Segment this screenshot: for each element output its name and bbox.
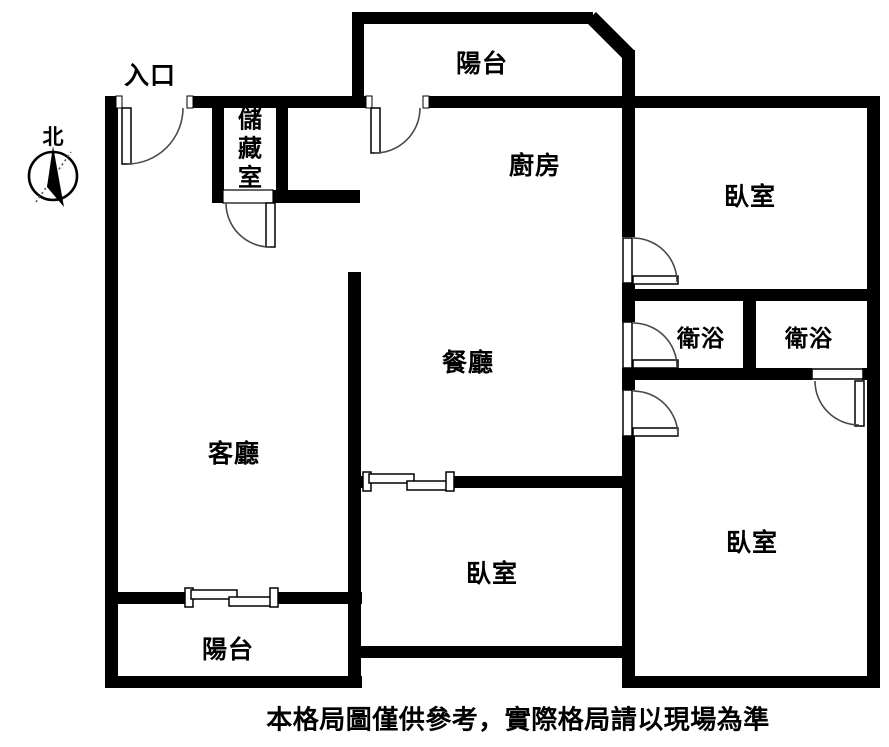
room-label-bath-left: 衛浴	[677, 319, 725, 353]
wall-segment	[348, 646, 635, 658]
wall-segment	[276, 592, 362, 604]
wall-segment	[867, 96, 880, 688]
wall-segment	[212, 190, 223, 203]
wall-segment	[450, 476, 635, 488]
balcony-sliding-door	[185, 588, 278, 607]
compass-north-label: 北	[43, 121, 64, 151]
room-label-bath-right: 衛浴	[785, 319, 833, 353]
wall-segment	[212, 108, 224, 203]
wall-segment	[276, 108, 288, 190]
room-label-bedroom-se: 臥室	[726, 523, 778, 559]
room-label-bedroom-s: 臥室	[466, 554, 518, 590]
room-label-kitchen: 廚房	[509, 146, 561, 182]
storage-door	[223, 190, 275, 247]
kitchen-balcony-door	[366, 96, 429, 153]
disclaimer-caption: 本格局圖僅供參考，實際格局請以現場為準	[266, 700, 770, 737]
wall-segment	[188, 96, 371, 108]
wall-segment	[352, 12, 364, 96]
wall-segment	[273, 190, 360, 203]
room-label-storage: 儲藏室	[230, 107, 265, 194]
wall-segment	[105, 676, 362, 688]
wall-segment	[743, 301, 756, 368]
bedroom-se-door	[623, 390, 678, 436]
entrance-door	[116, 96, 193, 164]
compass-icon	[29, 146, 77, 207]
wall-segment	[622, 50, 635, 237]
wall-segment	[424, 96, 880, 108]
wall-segment	[352, 12, 593, 24]
wall-segment	[105, 592, 188, 604]
wall-segment	[622, 283, 635, 322]
room-label-balcony-top: 陽台	[456, 44, 508, 80]
bedroom-ne-door	[623, 238, 678, 284]
wall-segment	[622, 368, 812, 380]
wall-segment	[862, 368, 880, 380]
room-label-dining: 餐廳	[442, 343, 494, 379]
wall-segment	[622, 676, 880, 688]
bathroom-left-door	[623, 322, 678, 368]
entrance-label: 入口	[124, 56, 176, 92]
room-label-balcony-bottom: 陽台	[202, 630, 254, 666]
wall-segment	[622, 289, 880, 301]
floor-plan: 北 入口 陽台 儲藏室 廚房 臥室 衛浴 衛浴 餐廳 客廳 臥室 臥室 陽台 本…	[0, 0, 889, 747]
bedroom-sliding-window	[363, 472, 454, 491]
bathroom-right-door	[812, 369, 864, 426]
room-label-bedroom-ne: 臥室	[724, 177, 776, 213]
room-label-living: 客廳	[208, 434, 260, 470]
